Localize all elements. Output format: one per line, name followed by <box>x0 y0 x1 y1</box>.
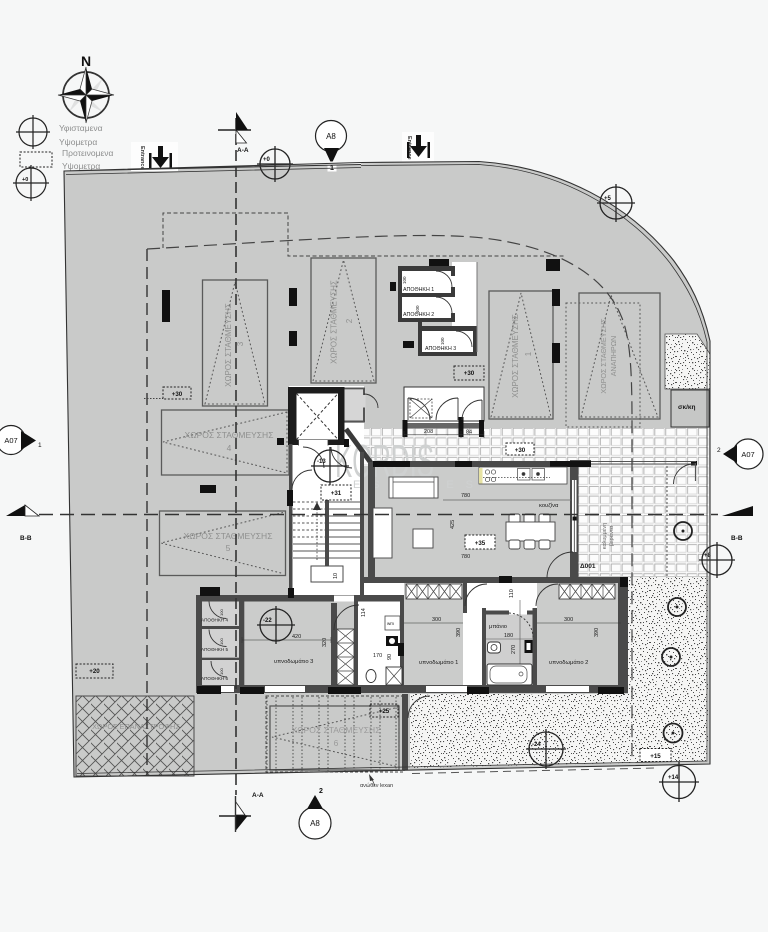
svg-text:780: 780 <box>461 554 470 560</box>
svg-text:Δ001: Δ001 <box>580 563 596 570</box>
svg-text:3: 3 <box>236 341 245 346</box>
svg-text:ΧΩΡΟΣ ΣΤΑΘΜΕΥΣΗΣ: ΧΩΡΟΣ ΣΤΑΘΜΕΥΣΗΣ <box>330 280 339 364</box>
svg-text:A8: A8 <box>310 819 320 828</box>
svg-text:A-A: A-A <box>237 147 249 154</box>
svg-text:A-A: A-A <box>252 792 264 799</box>
svg-text:+30: +30 <box>464 370 475 377</box>
svg-text:σκ/κη: σκ/κη <box>678 404 696 411</box>
svg-text:100: 100 <box>440 337 445 345</box>
svg-text:100: 100 <box>402 276 407 284</box>
svg-text:90: 90 <box>387 654 393 660</box>
svg-text:-24: -24 <box>532 742 541 748</box>
svg-text:+30: +30 <box>515 447 526 454</box>
svg-text:Entrance: Entrance <box>139 146 145 170</box>
svg-text:2: 2 <box>717 447 721 454</box>
svg-text:ΧΩΡΟΣ ΣΤΑΘΜΕΥΣΗΣ: ΧΩΡΟΣ ΣΤΑΘΜΕΥΣΗΣ <box>511 314 520 398</box>
svg-text:2: 2 <box>319 788 323 795</box>
svg-text:υπνοδωμάτιο 2: υπνοδωμάτιο 2 <box>549 659 588 666</box>
svg-text:170: 170 <box>373 653 382 659</box>
svg-text:+35: +35 <box>475 540 486 547</box>
svg-text:Υψομετρα: Υψομετρα <box>59 137 97 147</box>
svg-text:+25: +25 <box>379 708 390 715</box>
svg-text:ΧΩΡΟΣ ΣΤΑΘΜΕΥΣΗΣ: ΧΩΡΟΣ ΣΤΑΘΜΕΥΣΗΣ <box>224 303 233 387</box>
svg-text:ΧΩΡΟΣ ΕΠΑΝΑΣΤΡΟΦΗΣ: ΧΩΡΟΣ ΕΠΑΝΑΣΤΡΟΦΗΣ <box>92 722 180 731</box>
svg-text:+31: +31 <box>331 490 342 497</box>
svg-text:5: 5 <box>226 543 231 553</box>
svg-text:μπάνιο: μπάνιο <box>489 623 507 630</box>
svg-text:10: 10 <box>333 573 339 579</box>
svg-text:1: 1 <box>38 442 42 449</box>
svg-text:110: 110 <box>509 589 515 598</box>
svg-text:300: 300 <box>564 617 573 623</box>
svg-text:+14: +14 <box>668 775 679 781</box>
svg-text:ΑΠΟΘΗΚΗ 6: ΑΠΟΘΗΚΗ 6 <box>201 676 229 681</box>
svg-text:+15: +15 <box>650 753 661 760</box>
svg-text:100: 100 <box>415 305 420 313</box>
svg-text:Υφισταμενα: Υφισταμενα <box>59 123 103 133</box>
svg-text:-13: -13 <box>317 459 326 465</box>
svg-text:ΧΩΡΟΣ ΣΤΑΘΜΕΥΣΗΣ: ΧΩΡΟΣ ΣΤΑΘΜΕΥΣΗΣ <box>185 430 274 440</box>
svg-text:A07: A07 <box>741 450 754 459</box>
svg-text:300: 300 <box>432 617 441 623</box>
svg-text:6: 6 <box>334 738 339 748</box>
svg-text:ανώθεν lexan: ανώθεν lexan <box>360 782 393 789</box>
svg-text:wm: wm <box>387 621 394 626</box>
svg-text:N: N <box>81 53 91 69</box>
svg-text:420: 420 <box>292 634 301 640</box>
svg-text:ΧΩΡΟΣ ΣΤΑΘΜΕΥΣΗΣ: ΧΩΡΟΣ ΣΤΑΘΜΕΥΣΗΣ <box>184 531 273 541</box>
svg-text:390: 390 <box>594 628 600 637</box>
svg-text:+20: +20 <box>89 668 100 675</box>
svg-text:100: 100 <box>219 638 224 645</box>
svg-text:υπνοδωμάτιο 3: υπνοδωμάτιο 3 <box>274 658 313 665</box>
svg-text:B-B: B-B <box>20 535 32 542</box>
svg-text:υπνοδωμάτιο 1: υπνοδωμάτιο 1 <box>419 659 458 666</box>
svg-text:ΧΩΡΟΣ ΣΤΑΘΜΕΥΣΗΣ: ΧΩΡΟΣ ΣΤΑΘΜΕΥΣΗΣ <box>292 725 381 735</box>
svg-text:A8: A8 <box>326 132 336 141</box>
svg-text:κουζίνα: κουζίνα <box>539 503 559 509</box>
svg-text:1: 1 <box>330 163 334 172</box>
svg-text:καλυμμένη: καλυμμένη <box>601 523 608 550</box>
svg-text:425: 425 <box>450 520 456 529</box>
svg-text:4: 4 <box>227 443 232 453</box>
svg-text:+0: +0 <box>263 157 271 163</box>
svg-text:ΑΠΟΘΗΚΗ 3: ΑΠΟΘΗΚΗ 3 <box>425 346 456 352</box>
svg-text:B-B: B-B <box>731 535 743 542</box>
svg-text:320: 320 <box>322 638 328 647</box>
svg-text:-22: -22 <box>263 618 272 624</box>
svg-text:390: 390 <box>456 628 462 637</box>
svg-text:ΑΠΟΘΗΚΗ 4: ΑΠΟΘΗΚΗ 4 <box>201 618 229 623</box>
svg-text:Υψομετρα: Υψομετρα <box>62 161 100 171</box>
svg-text:A07: A07 <box>4 436 17 445</box>
svg-text:208: 208 <box>424 429 433 435</box>
svg-text:2: 2 <box>345 318 354 323</box>
svg-text:100: 100 <box>219 609 224 616</box>
svg-text:180: 180 <box>504 633 513 639</box>
svg-text:270: 270 <box>511 645 517 654</box>
svg-text:780: 780 <box>461 493 470 499</box>
svg-text:+30: +30 <box>172 391 183 398</box>
svg-text:ΑΝΑΠΗΡΩΝ: ΑΝΑΠΗΡΩΝ <box>609 336 618 377</box>
svg-text:ΑΠΟΘΗΚΗ 1: ΑΠΟΘΗΚΗ 1 <box>403 287 434 293</box>
svg-text:ΧΩΡΟΣ ΣΤΑΘΜΕΥΣΗΣ: ΧΩΡΟΣ ΣΤΑΘΜΕΥΣΗΣ <box>599 318 608 394</box>
svg-text:βεράντα: βεράντα <box>608 525 615 546</box>
svg-text:114: 114 <box>361 608 367 617</box>
svg-text:Προτεινομενα: Προτεινομενα <box>62 148 114 158</box>
svg-text:1: 1 <box>524 351 533 356</box>
svg-text:+0: +0 <box>22 177 28 183</box>
svg-text:ΑΠΟΘΗΚΗ 5: ΑΠΟΘΗΚΗ 5 <box>201 647 229 652</box>
svg-text:100: 100 <box>219 668 224 675</box>
